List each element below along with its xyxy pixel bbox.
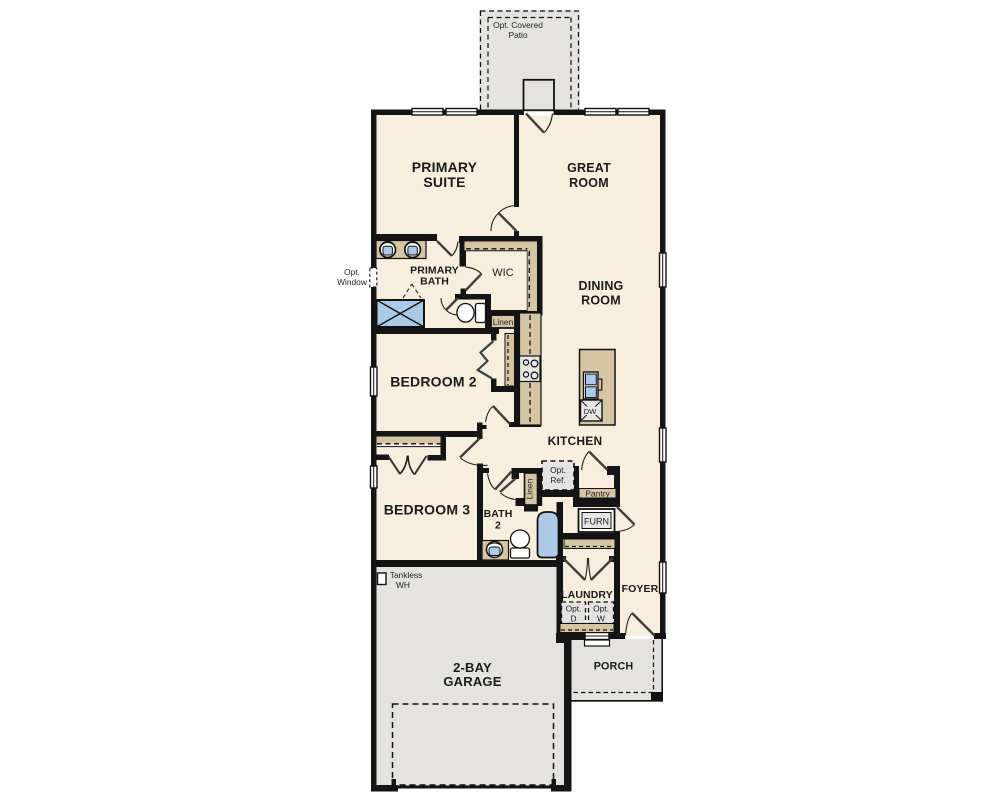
- svg-text:GREAT: GREAT: [567, 161, 611, 175]
- svg-text:Linen: Linen: [525, 478, 535, 499]
- svg-text:ROOM: ROOM: [569, 176, 609, 190]
- svg-text:BATH: BATH: [484, 508, 513, 520]
- svg-text:BEDROOM 3: BEDROOM 3: [384, 502, 471, 518]
- svg-text:ROOM: ROOM: [581, 294, 621, 308]
- svg-text:FOYER: FOYER: [622, 583, 659, 595]
- svg-text:BATH: BATH: [420, 276, 449, 288]
- svg-text:BEDROOM 2: BEDROOM 2: [390, 374, 477, 390]
- svg-text:LAUNDRY: LAUNDRY: [561, 589, 613, 601]
- svg-text:WIC: WIC: [492, 267, 513, 279]
- svg-text:Linen: Linen: [493, 317, 514, 327]
- svg-text:Ref.: Ref.: [550, 475, 565, 485]
- svg-text:GARAGE: GARAGE: [443, 674, 501, 689]
- svg-text:Opt. Covered: Opt. Covered: [493, 20, 543, 30]
- svg-text:Window: Window: [337, 277, 368, 287]
- svg-text:Opt.: Opt.: [344, 267, 360, 277]
- svg-text:DINING: DINING: [579, 279, 624, 293]
- svg-text:Opt.: Opt.: [550, 465, 566, 475]
- svg-text:FURN: FURN: [584, 517, 609, 527]
- svg-text:Patio: Patio: [508, 30, 527, 40]
- svg-text:KITCHEN: KITCHEN: [548, 434, 603, 448]
- svg-text:DW: DW: [584, 407, 597, 416]
- svg-text:Opt.: Opt.: [566, 604, 582, 614]
- svg-text:2: 2: [495, 520, 501, 532]
- svg-text:Opt.: Opt.: [593, 604, 609, 614]
- svg-text:PORCH: PORCH: [594, 661, 634, 673]
- svg-text:2-BAY: 2-BAY: [453, 660, 492, 675]
- svg-text:WH: WH: [396, 580, 410, 590]
- svg-text:Tankless: Tankless: [390, 570, 423, 580]
- svg-text:W: W: [597, 614, 605, 624]
- svg-text:D: D: [570, 614, 576, 624]
- svg-text:PRIMARY: PRIMARY: [412, 159, 478, 175]
- svg-text:Pantry: Pantry: [585, 489, 610, 499]
- svg-text:SUITE: SUITE: [423, 174, 465, 190]
